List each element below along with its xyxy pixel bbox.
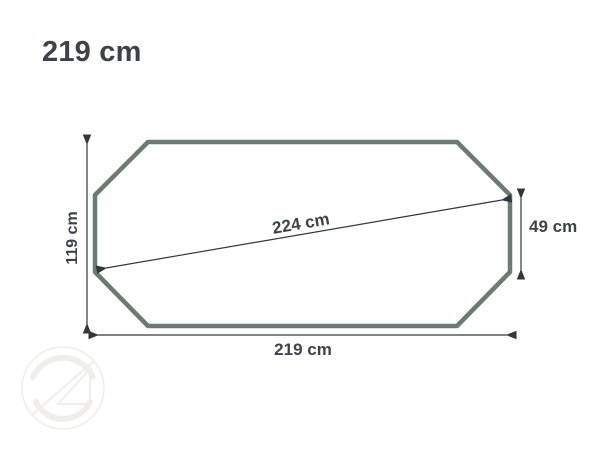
page-title: 219 cm bbox=[42, 36, 142, 69]
height-dimension-label: 119 cm bbox=[64, 211, 82, 264]
watermark-stamp bbox=[22, 347, 104, 429]
dimension-diagram: 219 cm 119 cm 49 cm 219 cm 224 cm bbox=[0, 0, 607, 455]
diagonal-dimension-line bbox=[106, 200, 502, 268]
width-dimension-label: 219 cm bbox=[274, 340, 332, 360]
side-dimension-label: 49 cm bbox=[529, 217, 577, 237]
